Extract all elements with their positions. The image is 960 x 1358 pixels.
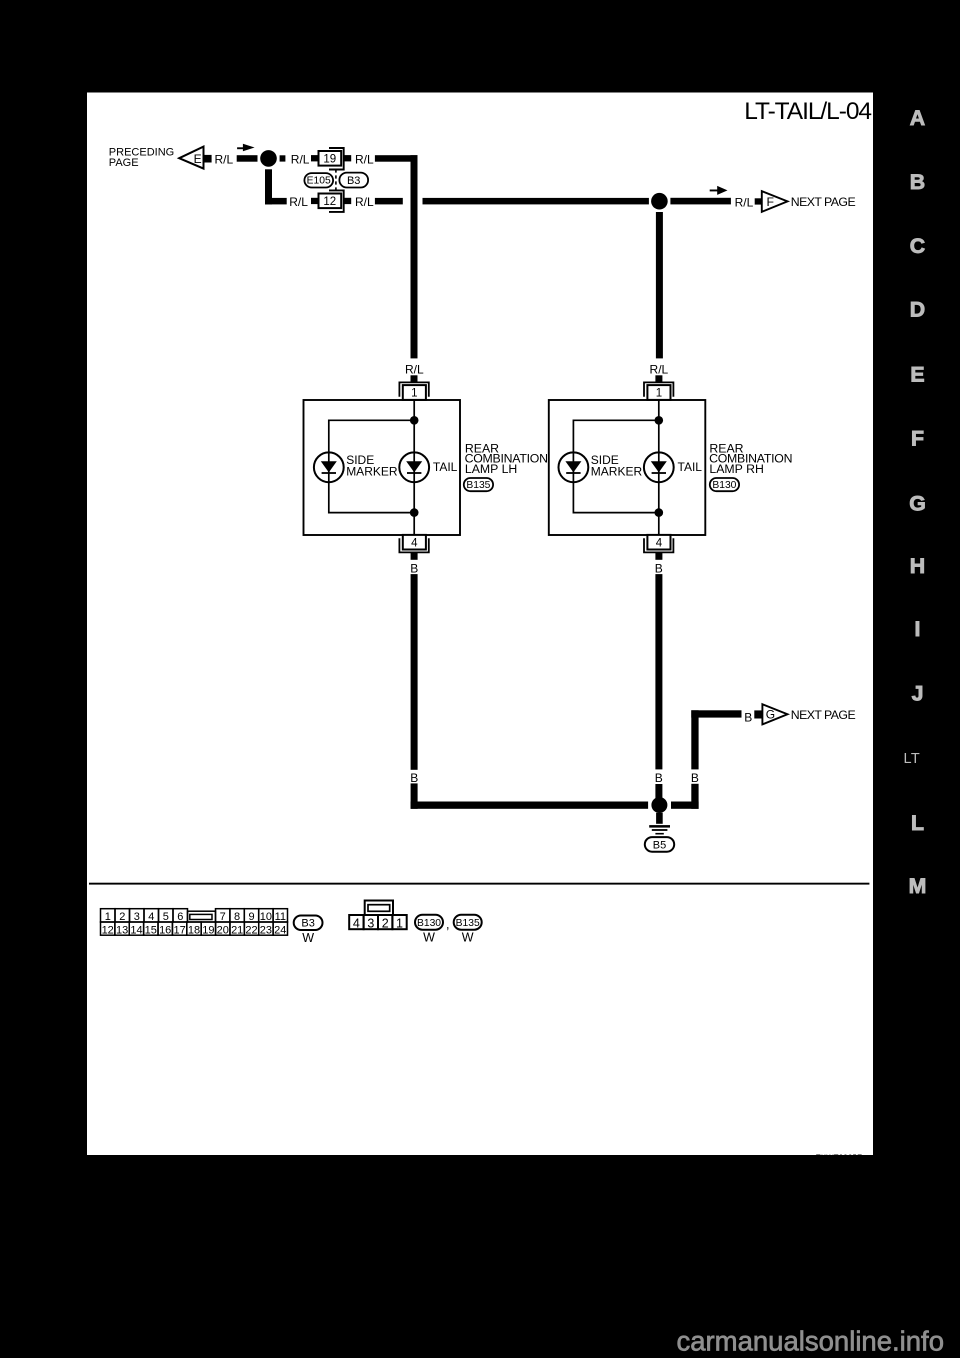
svg-text:R/L: R/L: [355, 195, 374, 209]
svg-text:carmanualsonline.info: carmanualsonline.info: [676, 1326, 944, 1357]
svg-text:1: 1: [656, 388, 662, 400]
svg-text:14: 14: [130, 925, 142, 937]
svg-text:15: 15: [145, 925, 157, 937]
svg-text:9: 9: [248, 911, 254, 923]
svg-text:F: F: [911, 427, 924, 451]
svg-text:1: 1: [411, 388, 417, 400]
svg-text:8: 8: [234, 911, 240, 923]
svg-text:6: 6: [177, 911, 183, 923]
svg-text:12: 12: [102, 925, 114, 937]
svg-text:G: G: [909, 491, 926, 515]
svg-text:B: B: [410, 561, 418, 575]
svg-text:2: 2: [382, 917, 389, 931]
svg-text:4: 4: [353, 917, 360, 931]
svg-text:4: 4: [411, 537, 418, 549]
svg-text:R/L: R/L: [215, 153, 234, 167]
svg-text:H: H: [910, 554, 925, 578]
svg-text:11: 11: [275, 911, 286, 923]
svg-text:4: 4: [148, 911, 154, 923]
svg-text:R/L: R/L: [291, 153, 310, 167]
svg-text:,: ,: [446, 918, 449, 932]
svg-text:R/L: R/L: [405, 363, 424, 377]
svg-text:W: W: [423, 931, 435, 945]
svg-text:3: 3: [367, 917, 374, 931]
svg-text:MARKER: MARKER: [346, 465, 398, 479]
svg-text:LT-TAIL/L-04: LT-TAIL/L-04: [744, 98, 871, 125]
svg-text:3: 3: [134, 911, 140, 923]
svg-text:1: 1: [105, 911, 111, 923]
svg-text:23: 23: [260, 925, 272, 937]
svg-text:B130: B130: [712, 480, 736, 491]
svg-text:TKWT0365E: TKWT0365E: [816, 1152, 863, 1161]
svg-text:LAMP RH: LAMP RH: [709, 462, 763, 476]
svg-text:B135: B135: [466, 480, 490, 491]
svg-text:W: W: [462, 931, 474, 945]
svg-text:B3: B3: [301, 918, 314, 930]
svg-text:TAIL: TAIL: [433, 460, 458, 474]
svg-text:B5: B5: [653, 839, 666, 851]
svg-text:4: 4: [656, 537, 663, 549]
svg-text:R/L: R/L: [735, 195, 754, 209]
svg-text:R/L: R/L: [650, 363, 669, 377]
svg-text:5: 5: [163, 911, 169, 923]
svg-text:G: G: [766, 708, 775, 722]
svg-text:MARKER: MARKER: [591, 465, 643, 479]
svg-text:E: E: [194, 152, 202, 166]
svg-text:B3: B3: [347, 175, 360, 187]
svg-text:B135: B135: [456, 918, 480, 929]
svg-text:NEXT PAGE: NEXT PAGE: [791, 708, 856, 722]
svg-text:C: C: [910, 234, 925, 258]
svg-text:LAMP LH: LAMP LH: [465, 462, 517, 476]
svg-text:L: L: [911, 811, 924, 835]
svg-text:F: F: [767, 195, 775, 209]
svg-text:1: 1: [396, 917, 403, 931]
svg-text:E105: E105: [307, 176, 331, 187]
svg-text:24: 24: [274, 925, 286, 937]
svg-text:B: B: [655, 771, 663, 785]
svg-text:B: B: [655, 561, 663, 575]
svg-text:I: I: [915, 617, 921, 641]
svg-text:B: B: [410, 771, 418, 785]
svg-text:R/L: R/L: [355, 153, 374, 167]
svg-text:2: 2: [119, 911, 125, 923]
svg-text:19: 19: [202, 925, 214, 937]
svg-text:13: 13: [116, 925, 128, 937]
svg-text:21: 21: [231, 925, 243, 937]
svg-text:7: 7: [220, 911, 226, 923]
svg-text:18: 18: [188, 925, 200, 937]
svg-text:A: A: [910, 106, 925, 130]
svg-text:20: 20: [217, 925, 229, 937]
svg-text:B130: B130: [417, 918, 441, 929]
svg-text:B: B: [691, 771, 699, 785]
svg-text:19: 19: [323, 154, 336, 166]
svg-text:R/L: R/L: [289, 195, 308, 209]
svg-text:B: B: [744, 710, 752, 724]
svg-text:D: D: [910, 298, 925, 322]
svg-text:LT: LT: [903, 751, 920, 767]
svg-text:17: 17: [173, 925, 185, 937]
svg-text:NEXT PAGE: NEXT PAGE: [791, 195, 856, 209]
svg-text:PAGE: PAGE: [109, 157, 139, 169]
svg-text:TAIL: TAIL: [678, 460, 703, 474]
svg-text:16: 16: [159, 925, 171, 937]
svg-text:B: B: [910, 170, 925, 194]
svg-text:12: 12: [323, 196, 336, 208]
svg-text:22: 22: [245, 925, 257, 937]
svg-text:W: W: [302, 931, 314, 945]
svg-text:E: E: [910, 363, 924, 387]
svg-text:M: M: [909, 874, 927, 898]
svg-text:J: J: [912, 681, 924, 705]
svg-text:10: 10: [260, 911, 272, 923]
